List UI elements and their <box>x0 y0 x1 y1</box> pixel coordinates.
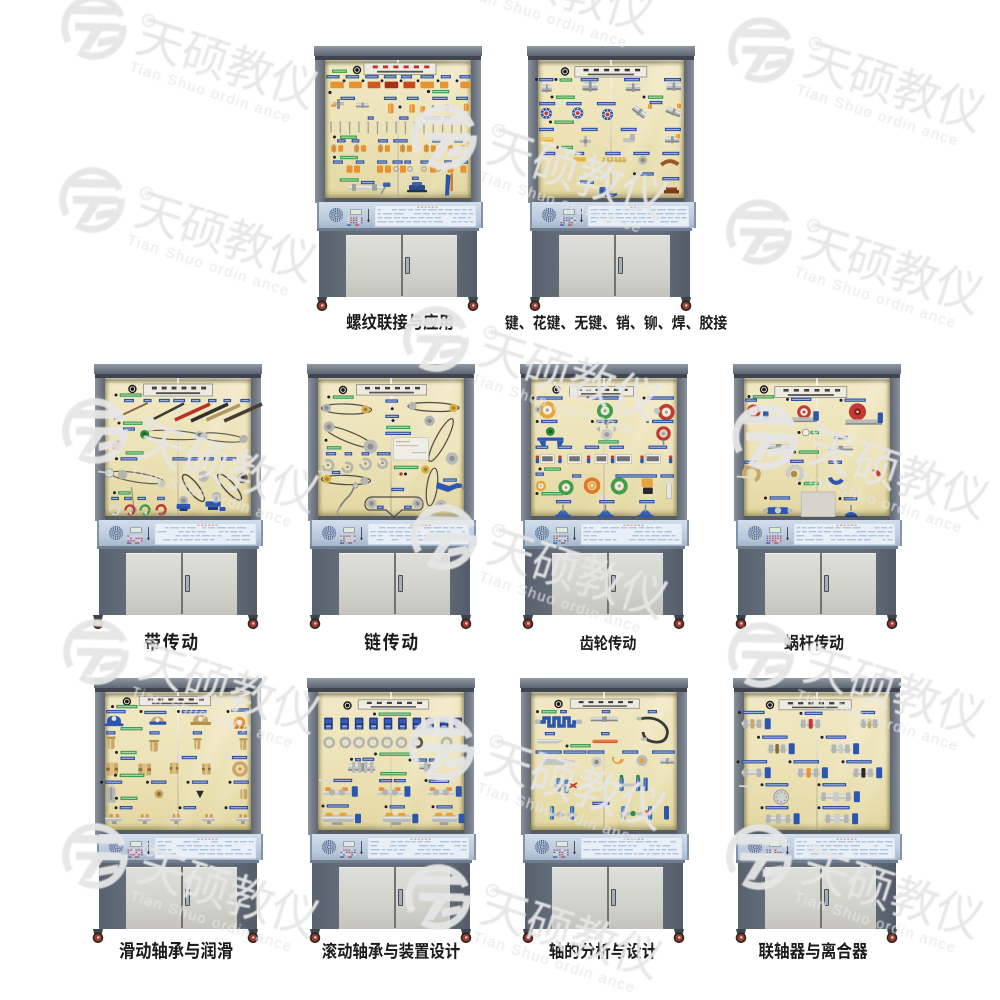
svg-text:Tian Shuo ordin ance: Tian Shuo ordin ance <box>463 0 630 52</box>
